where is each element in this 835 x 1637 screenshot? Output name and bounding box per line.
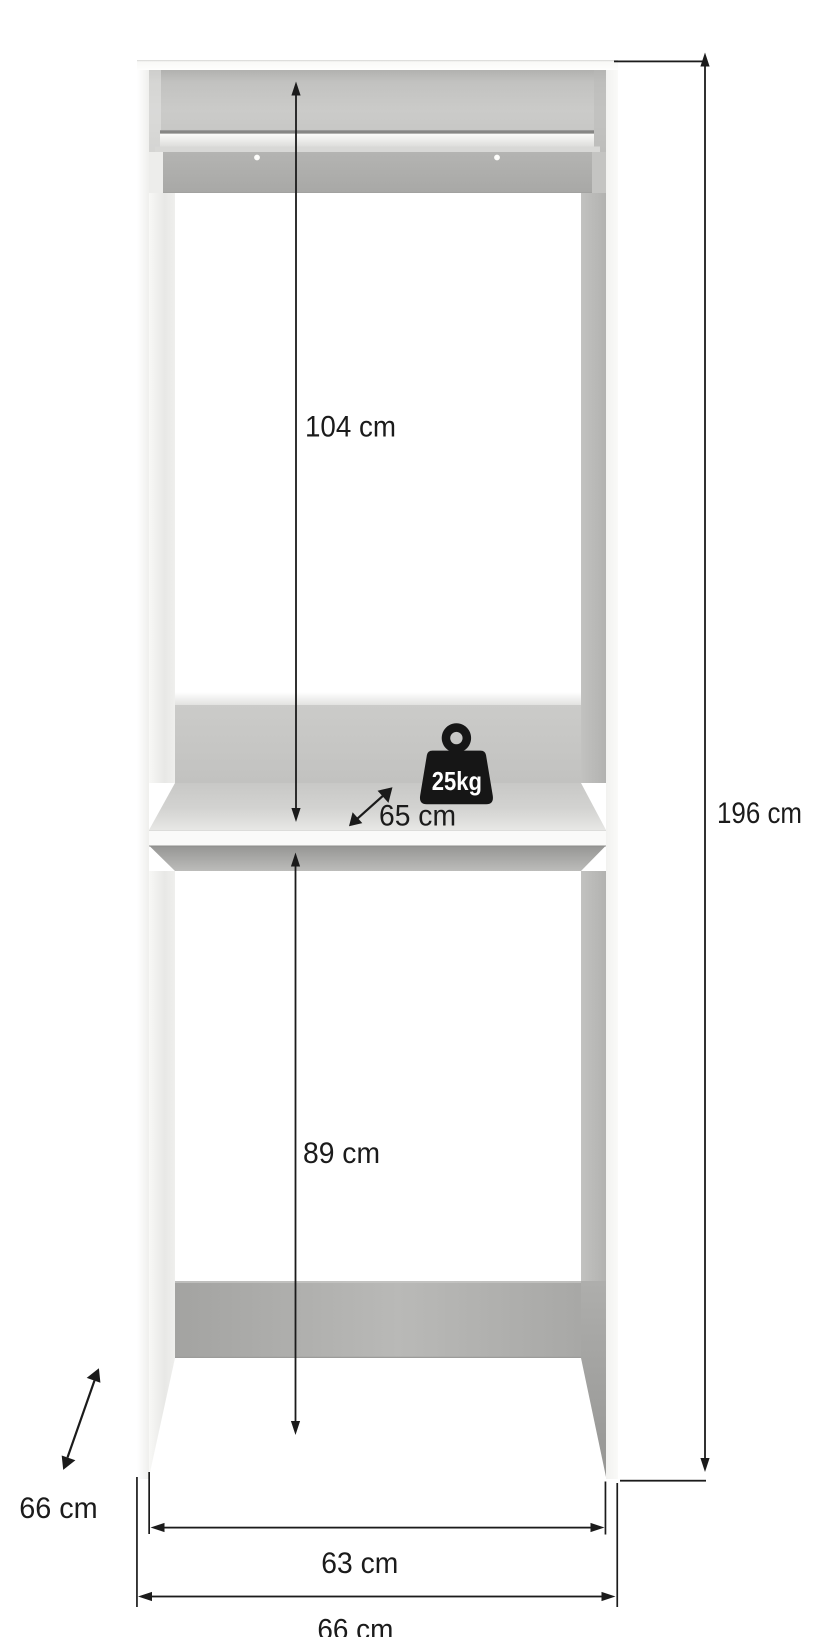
svg-text:66 cm: 66 cm: [19, 1492, 98, 1525]
svg-text:196 cm: 196 cm: [717, 797, 802, 830]
svg-text:63 cm: 63 cm: [321, 1547, 398, 1580]
svg-text:104 cm: 104 cm: [305, 410, 396, 443]
svg-text:25kg: 25kg: [432, 766, 482, 796]
svg-text:66 cm: 66 cm: [317, 1613, 393, 1637]
svg-text:89 cm: 89 cm: [303, 1137, 380, 1170]
svg-text:65 cm: 65 cm: [379, 799, 456, 832]
